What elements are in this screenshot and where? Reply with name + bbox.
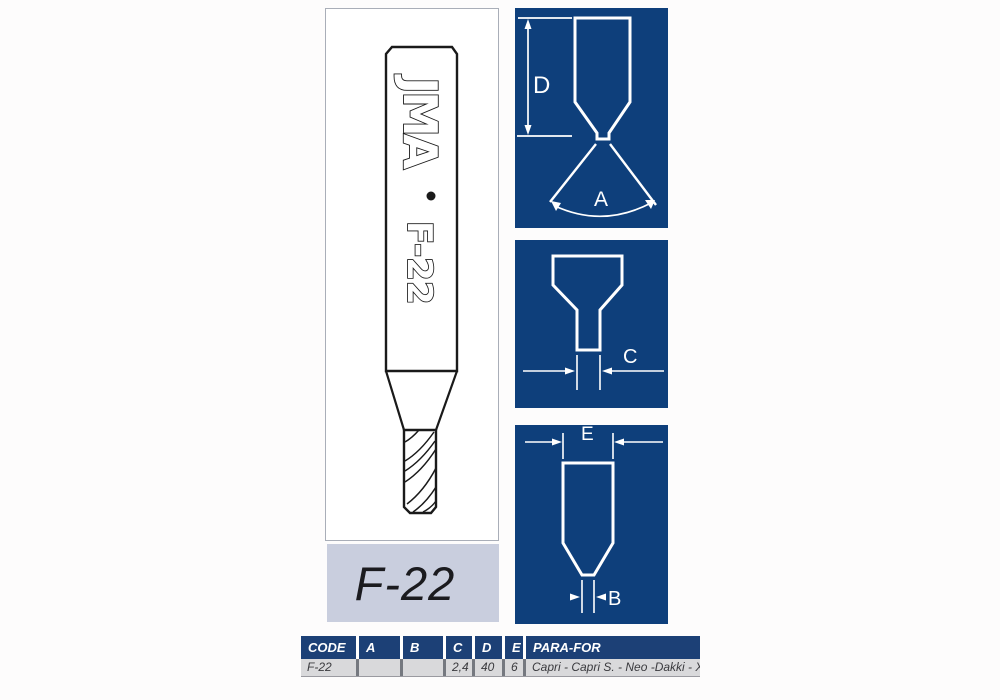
spec-table: CODE A B C D E PARA-FOR F-22 2,4 40 6 Ca…	[301, 636, 700, 677]
label-C: C	[623, 346, 637, 368]
product-code-label: F-22	[355, 556, 456, 611]
header-a: A	[359, 636, 400, 659]
tip-arrow-left	[596, 594, 606, 601]
cutter-tip-outline	[404, 430, 436, 513]
registered-mark-icon	[427, 192, 436, 201]
diagram3-profile	[563, 463, 613, 575]
diagram-shaft-width: C	[515, 240, 668, 408]
cutter-flutes	[405, 430, 436, 512]
cutter-taper	[386, 371, 457, 430]
dim-arrow-up	[525, 19, 532, 29]
dim-arrow-right	[552, 439, 562, 446]
header-para-for: PARA-FOR	[526, 636, 700, 659]
cell-d: 40	[475, 659, 502, 676]
header-code: CODE	[301, 636, 356, 659]
arc-arrow-left	[551, 201, 561, 211]
cutter-drawing: JMA F-22	[326, 9, 498, 540]
diagram2-ext-lines	[577, 355, 600, 390]
cell-a	[359, 659, 400, 676]
diagram3-tip-ext-lines	[582, 580, 594, 613]
dim-arrow-down	[525, 125, 532, 135]
spec-table-data-row: F-22 2,4 40 6 Capri - Capri S. - Neo -Da…	[301, 659, 700, 677]
shank-model-text: F-22	[399, 221, 439, 305]
product-drawing-panel: JMA F-22	[325, 8, 499, 541]
product-code-box: F-22	[327, 544, 499, 622]
diagram-depth-angle: D A	[515, 8, 668, 228]
header-e: E	[505, 636, 523, 659]
label-A: A	[594, 188, 608, 211]
header-d: D	[475, 636, 502, 659]
header-b: B	[403, 636, 443, 659]
dim-arrow-left	[614, 439, 624, 446]
cell-code: F-22	[301, 659, 356, 676]
dim-arrow-left	[602, 368, 612, 375]
cell-c: 2,4	[446, 659, 472, 676]
label-E: E	[581, 425, 594, 445]
header-c: C	[446, 636, 472, 659]
dim-arrow-right	[565, 368, 575, 375]
cell-b	[403, 659, 443, 676]
diagram-head-tip-width: E B	[515, 425, 668, 624]
label-B: B	[608, 588, 621, 610]
tip-arrow-right	[570, 594, 580, 601]
diagram2-profile	[553, 256, 622, 350]
diagram1-profile	[575, 18, 630, 139]
brand-logo-text: JMA	[393, 74, 447, 170]
cell-para-for: Capri - Capri S. - Neo -Dakki - Xcode	[526, 659, 700, 676]
label-D: D	[533, 72, 550, 99]
cell-e: 6	[505, 659, 523, 676]
spec-table-header-row: CODE A B C D E PARA-FOR	[301, 636, 700, 659]
